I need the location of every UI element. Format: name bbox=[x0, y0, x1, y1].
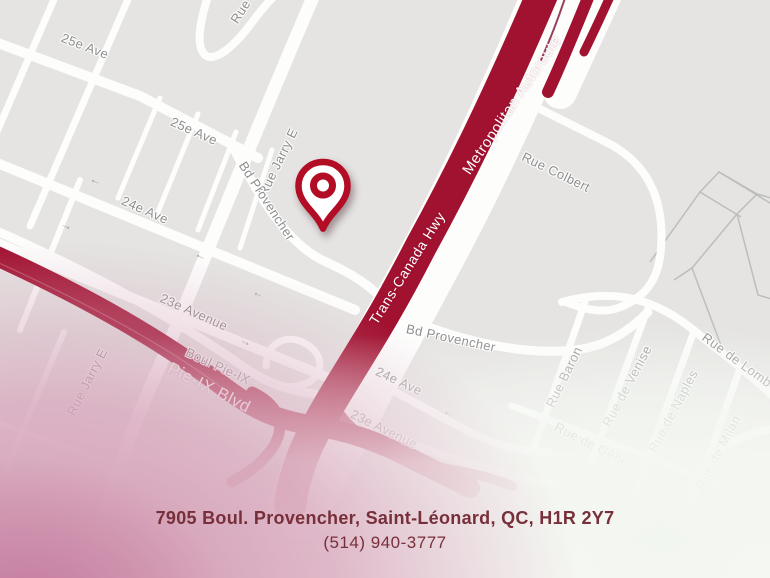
map-container[interactable]: 25e Ave Rue B Rue Jarry E 25e Ave Bd Pro… bbox=[0, 0, 770, 578]
parcel-outlines bbox=[650, 172, 770, 348]
dealer-address: 7905 Boul. Provencher, Saint-Léonard, QC… bbox=[0, 506, 770, 530]
dealer-phone: (514) 940-3777 bbox=[0, 530, 770, 556]
dealer-contact-block: 7905 Boul. Provencher, Saint-Léonard, QC… bbox=[0, 506, 770, 556]
location-pin-icon bbox=[294, 158, 352, 238]
